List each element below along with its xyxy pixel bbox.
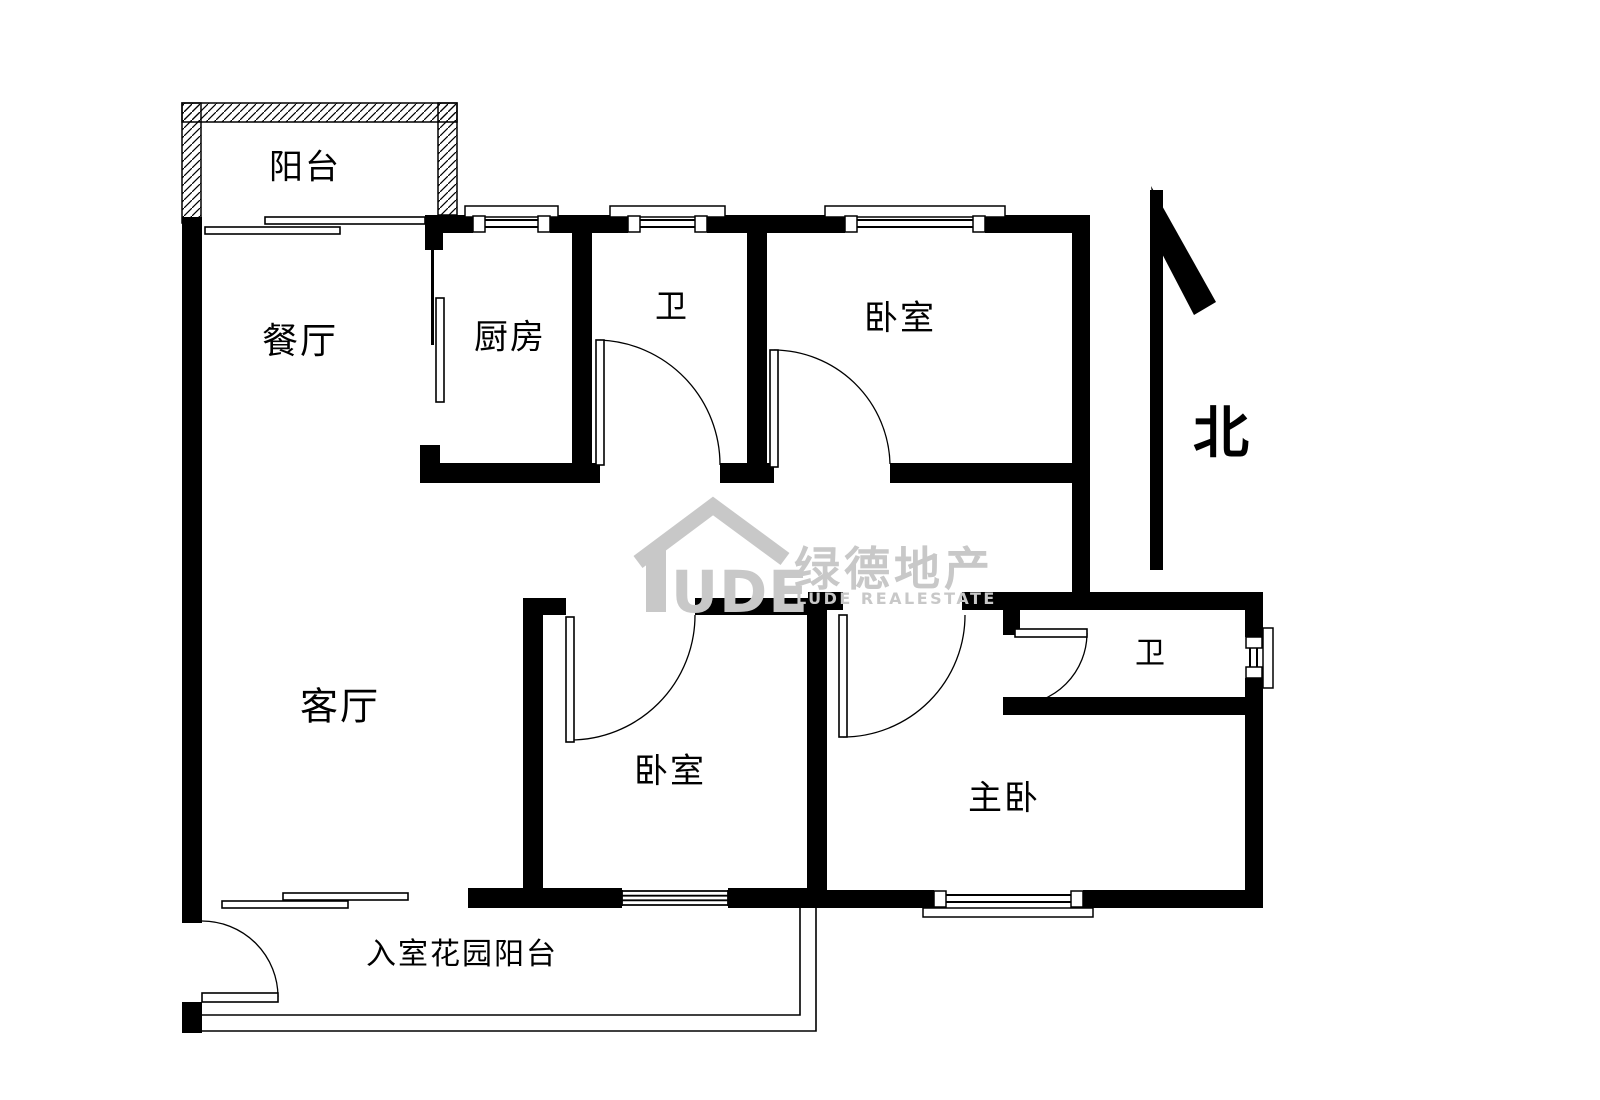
window-post	[973, 216, 985, 232]
sliding-door-panel	[205, 227, 340, 234]
wall-segment	[962, 592, 1263, 610]
wall-segment	[523, 598, 566, 615]
balcony-hatched-wall	[182, 103, 201, 223]
wall-segment	[728, 888, 825, 908]
wall-segment	[747, 217, 767, 465]
sliding-door-panel	[436, 298, 444, 402]
wall-segment	[572, 217, 592, 465]
wall-segment	[1083, 890, 1263, 908]
door-swing-arc	[1015, 633, 1087, 705]
sliding-door-panel	[283, 893, 408, 900]
window-post	[695, 216, 707, 232]
wall-segment	[1245, 592, 1263, 637]
window-post	[628, 216, 640, 232]
wall-segment	[890, 463, 1090, 483]
window-post	[473, 216, 485, 232]
room-label-bath-top: 卫	[655, 281, 689, 327]
wall-segment	[1072, 217, 1090, 610]
room-label-entry-garden: 入室花园阳台	[366, 929, 558, 973]
wall-segment	[1245, 678, 1263, 908]
floor-plan-svg: UDE绿德地产LUDE REALESTATE	[0, 0, 1600, 1100]
window-post	[538, 216, 550, 232]
door-leaf	[839, 615, 847, 737]
room-label-bedroom-top: 卧室	[864, 291, 936, 340]
wall-segment	[720, 463, 774, 483]
room-label-bath-master: 卫	[1135, 628, 1167, 672]
window-post	[1246, 637, 1262, 648]
window-post	[934, 891, 946, 907]
room-label-balcony: 阳台	[269, 140, 341, 189]
floor-plan: UDE绿德地产LUDE REALESTATE 阳台 餐厅 厨房 卫 卧室 客厅 …	[0, 0, 1600, 1100]
window-post	[1246, 667, 1262, 678]
room-label-kitchen: 厨房	[474, 310, 546, 359]
balcony-hatched-wall	[438, 103, 457, 215]
balcony-hatched-wall	[182, 103, 457, 122]
door-leaf	[770, 350, 778, 467]
sliding-door-panel	[265, 217, 425, 224]
room-label-living: 客厅	[300, 676, 380, 731]
sliding-door-panel	[222, 901, 348, 908]
wall-segment	[523, 598, 543, 890]
room-label-bedroom-mid: 卧室	[634, 744, 706, 793]
door-leaf	[202, 993, 278, 1002]
door-leaf	[566, 617, 574, 742]
watermark-brand-en: LUDE REALESTATE	[796, 589, 997, 608]
window-sill	[1263, 628, 1273, 688]
room-label-master: 主卧	[968, 771, 1040, 820]
watermark-logo-bar	[646, 549, 666, 612]
door-swing-arc	[843, 615, 965, 737]
sliding-door-track	[431, 240, 434, 345]
wall-segment	[468, 888, 622, 908]
door-leaf	[596, 340, 604, 465]
wall-segment	[825, 890, 934, 908]
window-post	[1071, 891, 1083, 907]
wall-segment	[420, 463, 600, 483]
window-post	[845, 216, 857, 232]
window-sill	[923, 908, 1093, 917]
wall-segment	[182, 1002, 202, 1033]
north-label: 北	[1193, 389, 1249, 470]
room-label-dining: 餐厅	[262, 312, 338, 364]
door-swing-arc	[202, 921, 278, 997]
wall-segment	[807, 598, 827, 908]
wall-segment	[182, 217, 202, 923]
door-leaf	[1015, 629, 1087, 637]
door-swing-arc	[600, 340, 720, 465]
watermark-brand-cn: 绿德地产	[794, 542, 994, 596]
door-swing-arc	[774, 350, 890, 464]
watermark-logo-text: UDE	[671, 558, 809, 626]
door-swing-arc	[570, 615, 695, 740]
